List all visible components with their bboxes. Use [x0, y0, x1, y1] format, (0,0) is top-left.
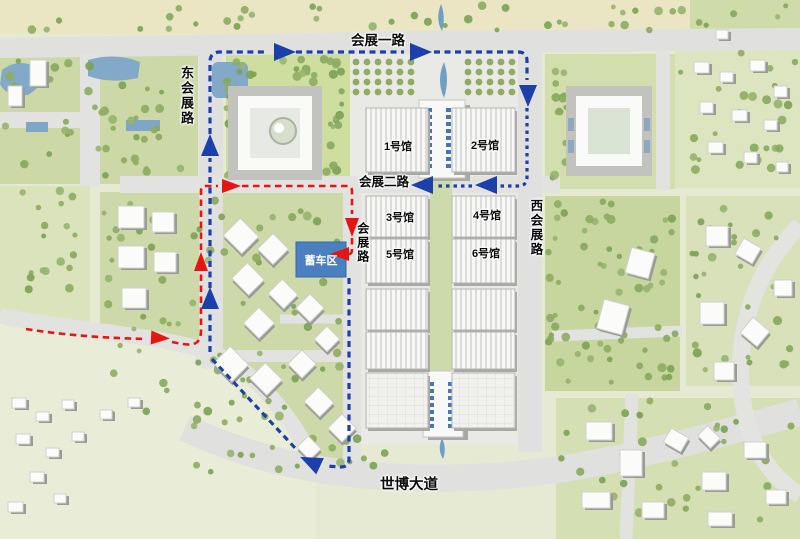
building	[586, 422, 615, 442]
building	[750, 60, 768, 73]
building	[8, 502, 26, 514]
square-building-west	[228, 86, 322, 180]
building	[8, 86, 25, 108]
site-plan-map: 会展一路 东会展路 会展二路 会展路 西会展路 世博大道 1号馆 2号馆 3号馆…	[0, 0, 800, 539]
building	[694, 62, 712, 75]
building	[708, 512, 735, 528]
building	[766, 490, 789, 506]
hall-label-1: 1号馆	[376, 141, 420, 154]
building	[582, 492, 613, 510]
staging-area-label: 蓄车区	[297, 255, 345, 268]
square-building-east	[566, 86, 652, 176]
flat-hall-block	[366, 373, 428, 428]
hall-label-4: 4号馆	[465, 210, 509, 223]
hall-block	[452, 332, 515, 369]
hall-label-3: 3号馆	[378, 212, 422, 225]
hall-block	[452, 289, 515, 330]
building	[118, 246, 147, 270]
road-label-shibo-dadao: 世博大道	[372, 477, 446, 494]
hall-label-2: 2号馆	[463, 140, 507, 153]
pool	[26, 122, 48, 132]
building	[700, 302, 727, 326]
road-label-xi-huizhan-lu: 西会展路	[528, 199, 542, 257]
building	[774, 280, 795, 298]
building	[152, 212, 177, 234]
building	[642, 502, 667, 520]
building	[714, 362, 737, 382]
building	[118, 206, 147, 230]
building	[732, 110, 750, 123]
map-canvas	[0, 0, 800, 539]
building	[706, 226, 731, 248]
pond	[88, 56, 140, 80]
hall-block	[366, 289, 428, 330]
building	[12, 398, 29, 410]
building	[16, 434, 33, 446]
hall-block	[366, 332, 428, 369]
hall-block	[452, 239, 515, 283]
building	[154, 252, 179, 274]
hall-block	[366, 108, 428, 172]
hall-label-5: 5号馆	[378, 249, 422, 262]
building	[620, 450, 645, 478]
flat-hall-block	[452, 373, 515, 428]
road-label-dong-huizhan-lu: 东会展路	[178, 66, 193, 126]
building	[708, 142, 726, 155]
road-label-huizhan-er-lu: 会展二路	[352, 175, 416, 189]
central-green-spine	[430, 178, 452, 374]
building	[702, 472, 729, 492]
road-label-huizhan-lu: 会展路	[355, 222, 369, 264]
hall-label-6: 6号馆	[464, 248, 508, 261]
building	[122, 288, 149, 310]
building	[744, 442, 769, 460]
road-label-huizhan-yi-lu: 会展一路	[338, 33, 418, 49]
building	[30, 472, 47, 484]
building	[30, 60, 49, 88]
